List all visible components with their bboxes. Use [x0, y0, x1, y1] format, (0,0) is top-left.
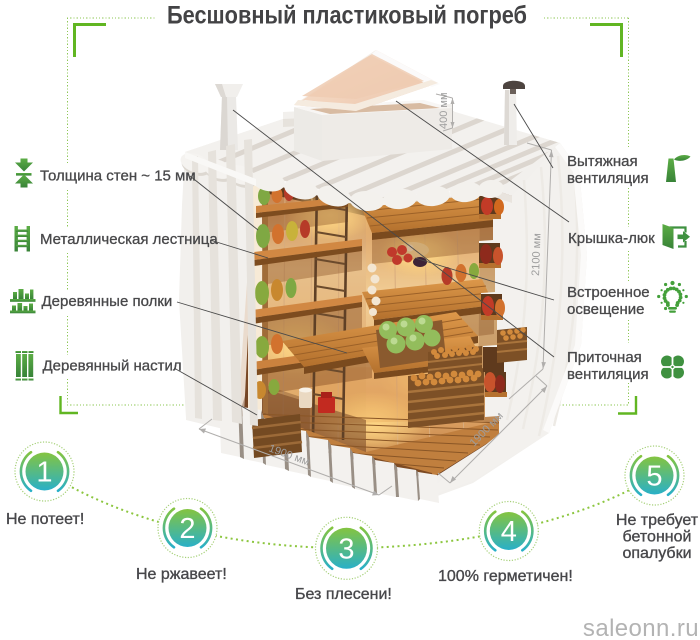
- svg-text:saleonn.ru: saleonn.ru: [583, 615, 699, 640]
- svg-text:Без плесени!: Без плесени!: [295, 586, 392, 603]
- svg-text:100% герметичен!: 100% герметичен!: [438, 568, 573, 585]
- svg-text:Не потеет!: Не потеет!: [6, 511, 84, 528]
- svg-text:2: 2: [179, 513, 195, 545]
- svg-text:2100 мм: 2100 мм: [530, 233, 543, 276]
- svg-text:Не ржавеет!: Не ржавеет!: [136, 566, 227, 583]
- svg-text:вентиляция: вентиляция: [567, 366, 649, 383]
- svg-text:бетонной: бетонной: [623, 529, 692, 546]
- svg-text:Деревянные полки: Деревянные полки: [42, 293, 173, 310]
- svg-text:Встроенное: Встроенное: [567, 284, 650, 301]
- svg-text:Металлическая лестница: Металлическая лестница: [40, 231, 218, 248]
- svg-text:Бесшовный пластиковый погреб: Бесшовный пластиковый погреб: [167, 2, 527, 30]
- svg-text:Вытяжная: Вытяжная: [567, 153, 638, 170]
- svg-text:опалубки: опалубки: [622, 545, 691, 562]
- svg-text:Толщина стен ~ 15 мм: Толщина стен ~ 15 мм: [40, 168, 196, 185]
- svg-text:вентиляция: вентиляция: [567, 170, 649, 187]
- svg-text:Крышка-люк: Крышка-люк: [568, 230, 655, 247]
- svg-text:Не требует: Не требует: [616, 512, 699, 529]
- svg-text:400 мм: 400 мм: [438, 92, 450, 129]
- svg-text:3: 3: [338, 533, 354, 565]
- svg-text:Деревянный настил: Деревянный настил: [43, 358, 182, 375]
- svg-text:1: 1: [36, 457, 52, 489]
- svg-text:5: 5: [646, 461, 662, 493]
- svg-text:Приточная: Приточная: [567, 349, 642, 366]
- svg-text:4: 4: [501, 516, 517, 548]
- svg-text:освещение: освещение: [567, 301, 645, 318]
